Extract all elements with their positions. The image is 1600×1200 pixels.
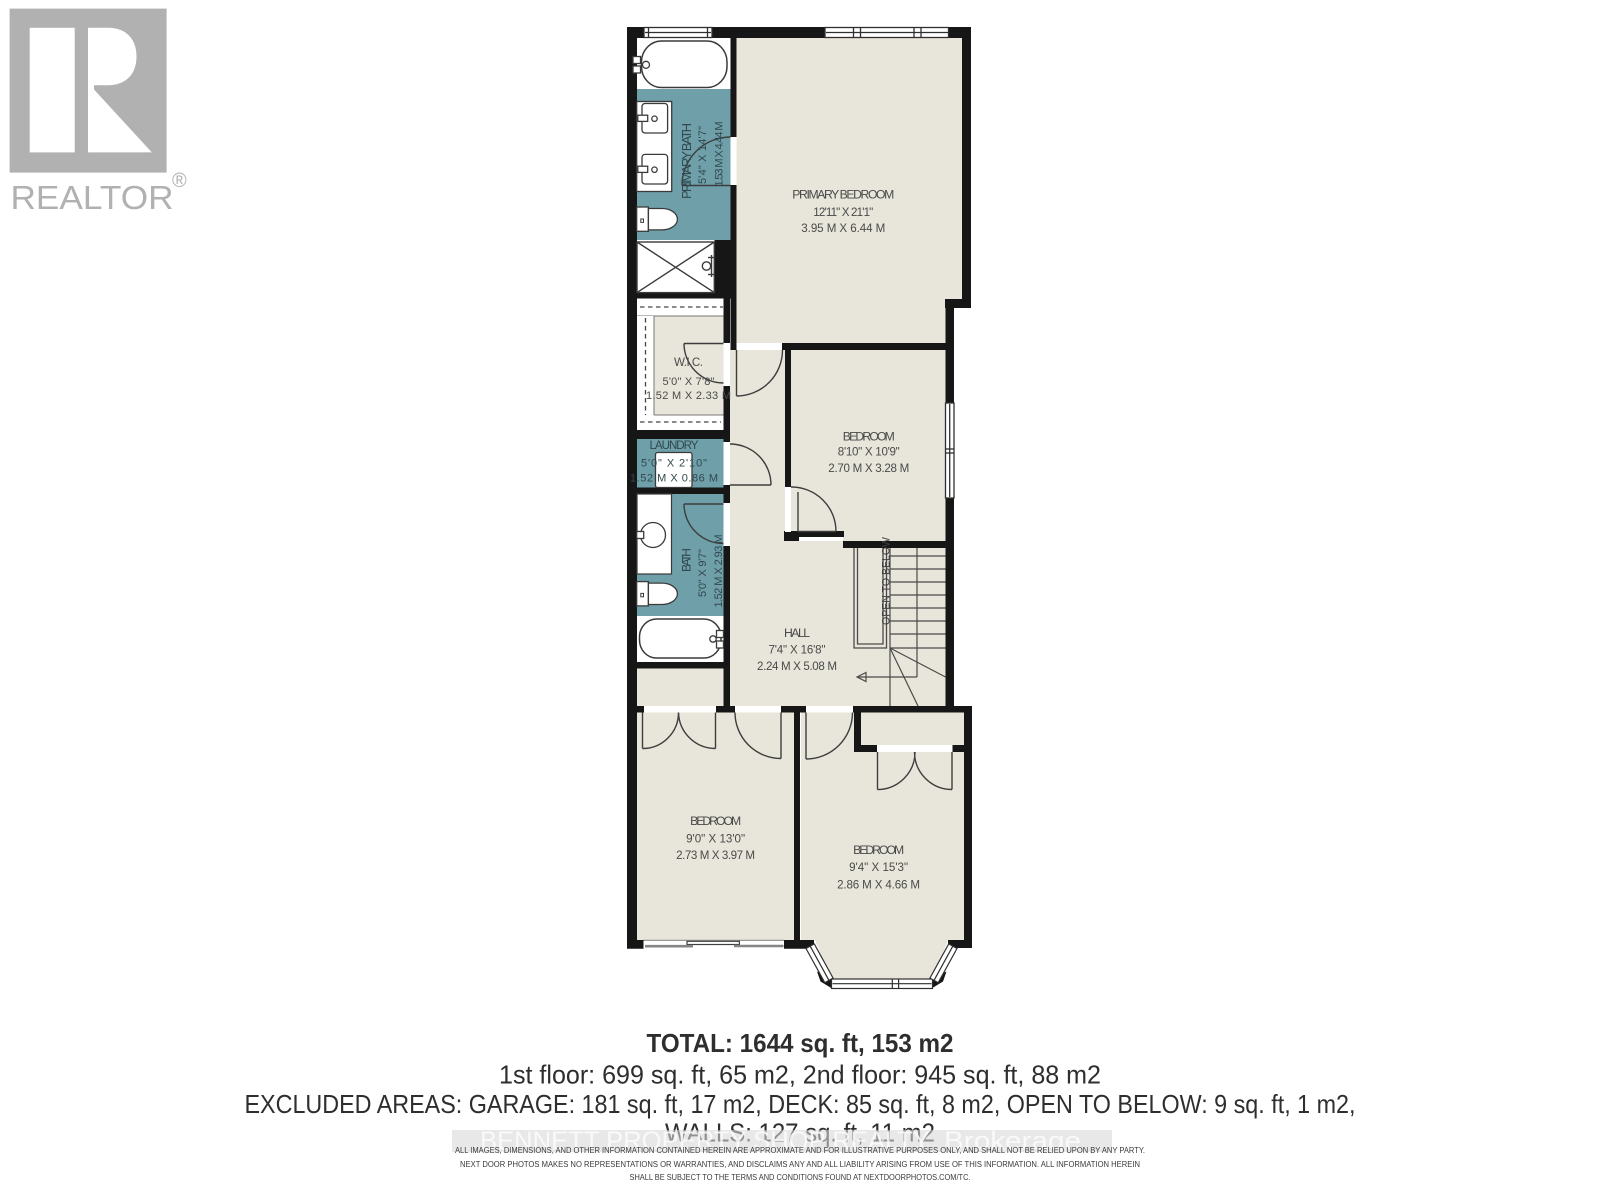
svg-text:1.53 M X 4.44 M: 1.53 M X 4.44 M <box>714 122 726 187</box>
svg-text:1.52 M X 0.86 M: 1.52 M X 0.86 M <box>630 473 718 485</box>
svg-text:2.73 M X 3.97 M: 2.73 M X 3.97 M <box>676 849 755 862</box>
svg-text:SHALL BE SUBJECT TO THE TERMS: SHALL BE SUBJECT TO THE TERMS AND CONDIT… <box>630 1173 971 1182</box>
svg-text:5'0" X 9'7": 5'0" X 9'7" <box>697 549 709 597</box>
svg-text:1st floor: 699 sq. ft, 65 m2,: 1st floor: 699 sq. ft, 65 m2, 2nd floor:… <box>499 1060 1101 1090</box>
svg-text:BEDROOM: BEDROOM <box>843 429 895 443</box>
svg-text:2.24 M X 5.08 M: 2.24 M X 5.08 M <box>757 660 837 673</box>
svg-text:ALL IMAGES, DIMENSIONS, AND OT: ALL IMAGES, DIMENSIONS, AND OTHER INFORM… <box>455 1146 1145 1155</box>
svg-text:5'0" X 7'8": 5'0" X 7'8" <box>663 376 715 388</box>
svg-text:PRIMARY BATH: PRIMARY BATH <box>679 123 694 199</box>
svg-text:BEDROOM: BEDROOM <box>690 814 741 828</box>
svg-text:12'11" X 21'1": 12'11" X 21'1" <box>813 206 873 219</box>
svg-text:9'4" X 15'3": 9'4" X 15'3" <box>849 861 908 874</box>
svg-text:EXCLUDED AREAS: GARAGE: 181 sq: EXCLUDED AREAS: GARAGE: 181 sq. ft, 17 m… <box>245 1089 1356 1119</box>
svg-text:5'4" X 14'7": 5'4" X 14'7" <box>697 126 709 184</box>
svg-text:LAUNDRY: LAUNDRY <box>650 439 699 452</box>
svg-text:BATH: BATH <box>680 548 694 572</box>
svg-text:7'4" X 16'8": 7'4" X 16'8" <box>769 644 826 657</box>
svg-text:NEXT DOOR PHOTOS MAKES NO REPR: NEXT DOOR PHOTOS MAKES NO REPRESENTATION… <box>460 1160 1140 1169</box>
svg-text:1.52 M X 2.93 M: 1.52 M X 2.93 M <box>713 535 725 608</box>
svg-text:HALL: HALL <box>784 626 810 640</box>
svg-text:2.70 M X 3.28 M: 2.70 M X 3.28 M <box>828 462 909 475</box>
svg-text:®: ® <box>172 170 187 192</box>
svg-text:OPEN TO BELOW: OPEN TO BELOW <box>881 536 893 625</box>
svg-text:8'10" X 10'9": 8'10" X 10'9" <box>838 446 900 459</box>
svg-text:1.52 M X 2.33 M: 1.52 M X 2.33 M <box>646 390 731 402</box>
svg-text:5'0" X 2'10": 5'0" X 2'10" <box>641 457 707 469</box>
svg-text:W.I.C.: W.I.C. <box>674 356 703 369</box>
svg-text:9'0" X 13'0": 9'0" X 13'0" <box>686 833 745 846</box>
svg-text:PRIMARY BEDROOM: PRIMARY BEDROOM <box>792 187 894 201</box>
svg-text:TOTAL: 1644 sq. ft, 153 m2: TOTAL: 1644 sq. ft, 153 m2 <box>647 1028 954 1058</box>
svg-text:2.86 M X 4.66 M: 2.86 M X 4.66 M <box>837 879 920 892</box>
svg-text:REALTOR: REALTOR <box>11 180 174 217</box>
svg-text:BEDROOM: BEDROOM <box>853 843 904 857</box>
svg-text:3.95 M X 6.44 M: 3.95 M X 6.44 M <box>801 222 885 235</box>
